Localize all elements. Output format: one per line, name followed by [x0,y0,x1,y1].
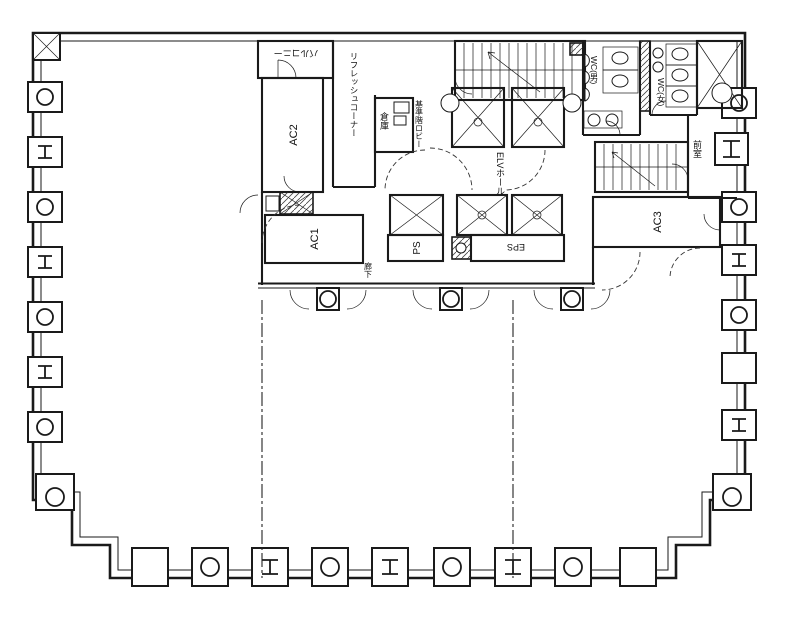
ac3-label: AC3 [652,211,664,232]
room-wc-women: WC(女) [650,41,697,115]
sink-icon [588,114,600,126]
wc-men-label: WC(男) [589,56,599,84]
toilet-icon [672,69,688,81]
sink-icon [606,114,618,126]
room-ac3: AC3 [593,197,720,247]
main-lobby-label: 基準階ロビー [415,99,424,148]
ac2-label: AC2 [288,124,300,145]
bottom-facade-columns [132,548,656,586]
room-refresh-corner: リフレッシュコーナー [333,41,375,187]
staircase-east [595,142,688,192]
balcony-label: バルコニー [274,48,319,58]
corner-column-topleft [33,33,60,60]
door-arc [704,214,720,230]
elevator-shafts-lower [390,195,562,235]
sink-icon [653,48,663,58]
elv-hall-label: ELVホール [495,152,505,195]
pipe-shafts: PS EPS [388,235,564,261]
room-ac1: AC1 [265,215,363,263]
small-duct-shaft [266,192,313,214]
staircase-north [455,41,585,100]
room-balcony: バルコニー [258,41,333,78]
floor-plan-sheet: バルコニー AC2 リフレッシュコーナー 倉庫 基準階ロビー [0,0,787,618]
eps-label: EPS [507,242,525,252]
stair-direction-arrow [612,152,655,186]
round-column-icon [441,94,459,112]
duct-shaft [570,43,583,55]
plumbing-wall [640,41,650,111]
room-wc-men: WC(男) [570,41,640,135]
toilet-icon [672,48,688,60]
door-arc [284,176,300,192]
stair-direction-arrow [488,52,540,92]
ps-label: PS [412,241,423,255]
door-arc [278,60,296,78]
toilet-icon [612,75,628,87]
sink-icon [653,62,663,72]
left-facade-columns [28,82,62,442]
toilet-icon [612,52,628,64]
corridor-label: 廊下 [364,261,373,279]
corner-column-bottomright [713,474,751,510]
ac1-label: AC1 [309,228,321,249]
service-shaft [697,41,742,108]
refresh-corner-label: リフレッシュコーナー [349,52,359,137]
storage-label: 倉庫 [379,111,389,131]
room-ac2: AC2 [262,78,323,192]
tenant-split-lines [262,300,513,578]
floor-plan-drawing: バルコニー AC2 リフレッシュコーナー 倉庫 基準階ロビー [0,0,787,618]
door-arc [240,195,258,213]
corridor-columns [290,288,610,310]
elevator-shafts-upper [441,88,581,147]
room-storage: 倉庫 [375,98,413,152]
urinal-icon [585,88,589,101]
corner-column-bottomleft [36,474,74,510]
exterior-walls [33,33,745,578]
round-column-icon [563,94,581,112]
door-arc [455,77,472,94]
toilet-icon [672,90,688,102]
door-arc [672,164,688,180]
anteroom-label: 前室 [692,139,702,158]
